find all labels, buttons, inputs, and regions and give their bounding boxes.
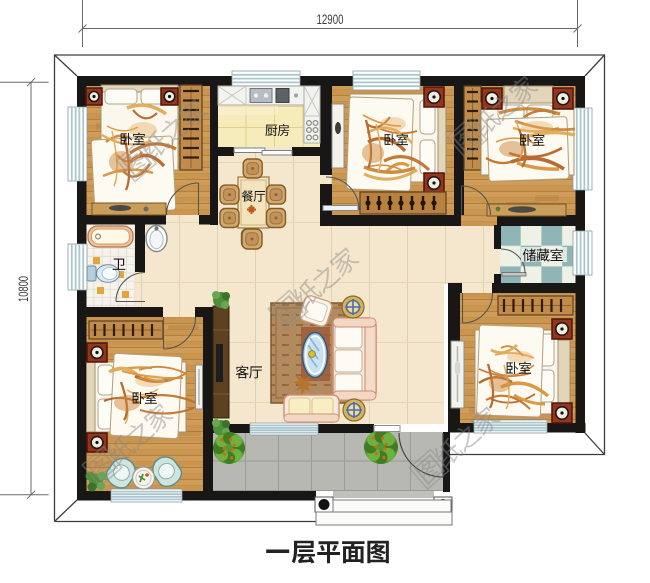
svg-text:12900: 12900 xyxy=(317,12,344,27)
svg-text:10800: 10800 xyxy=(16,276,31,302)
